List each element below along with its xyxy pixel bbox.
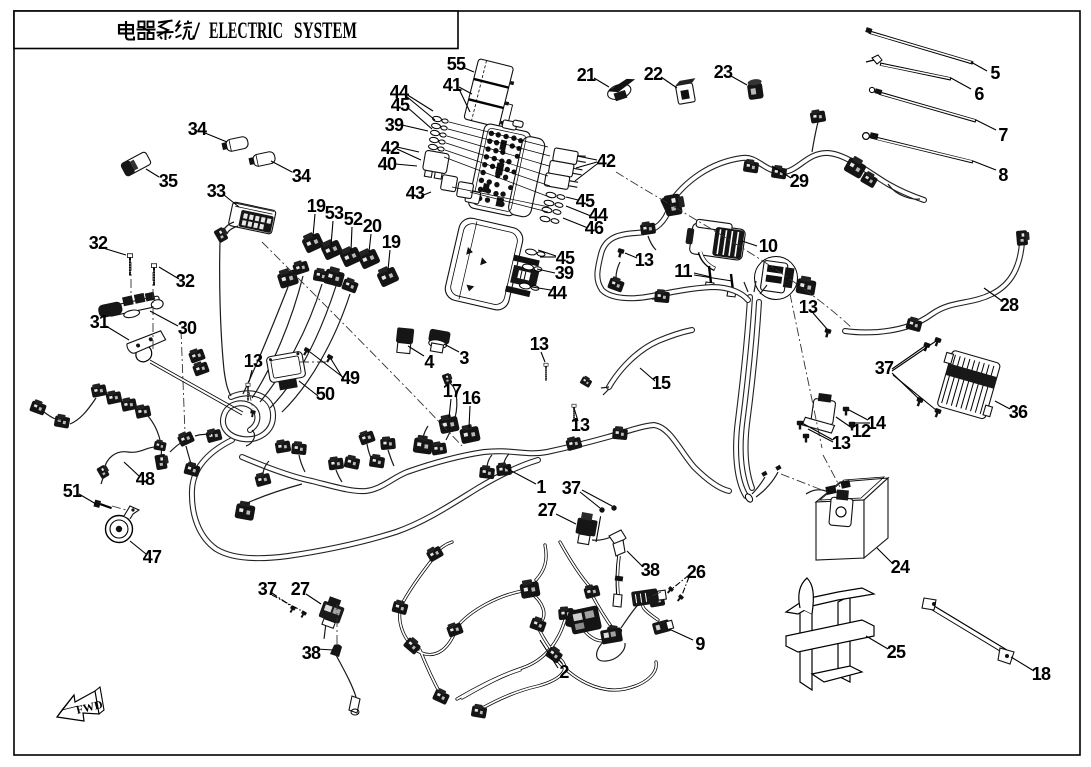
svg-text:17: 17 — [443, 381, 462, 401]
svg-text:53: 53 — [325, 203, 344, 223]
svg-text:ELECTRIC: ELECTRIC — [209, 18, 283, 44]
svg-text:35: 35 — [159, 171, 178, 191]
svg-text:32: 32 — [89, 233, 108, 253]
svg-text:2: 2 — [559, 662, 569, 682]
svg-text:34: 34 — [292, 166, 311, 186]
svg-text:33: 33 — [207, 181, 226, 201]
svg-text:42: 42 — [381, 138, 400, 158]
svg-text:14: 14 — [867, 413, 886, 433]
svg-text:25: 25 — [887, 642, 906, 662]
svg-text:13: 13 — [799, 297, 818, 317]
svg-text:49: 49 — [341, 368, 360, 388]
svg-text:13: 13 — [832, 433, 851, 453]
svg-text:37: 37 — [875, 358, 894, 378]
svg-text:27: 27 — [538, 500, 557, 520]
svg-text:20: 20 — [363, 216, 382, 236]
svg-text:5: 5 — [990, 63, 1000, 83]
svg-text:8: 8 — [998, 165, 1008, 185]
svg-text:13: 13 — [635, 250, 654, 270]
svg-text:/: / — [192, 18, 201, 45]
svg-text:11: 11 — [674, 261, 692, 281]
svg-text:18: 18 — [1032, 664, 1051, 684]
svg-text:47: 47 — [143, 547, 162, 567]
svg-text:13: 13 — [530, 334, 549, 354]
svg-text:19: 19 — [307, 196, 326, 216]
svg-text:7: 7 — [998, 125, 1008, 145]
svg-text:38: 38 — [302, 643, 321, 663]
svg-text:55: 55 — [447, 54, 466, 74]
svg-text:24: 24 — [891, 557, 910, 577]
svg-text:4: 4 — [424, 352, 434, 372]
svg-text:28: 28 — [1000, 295, 1019, 315]
svg-text:3: 3 — [459, 348, 469, 368]
svg-text:37: 37 — [258, 579, 277, 599]
svg-text:42: 42 — [597, 151, 616, 171]
svg-text:50: 50 — [316, 384, 335, 404]
svg-text:31: 31 — [90, 312, 109, 332]
svg-text:45: 45 — [556, 248, 575, 268]
svg-text:26: 26 — [687, 562, 706, 582]
svg-text:46: 46 — [585, 218, 604, 238]
svg-text:36: 36 — [1009, 402, 1028, 422]
svg-text:6: 6 — [974, 84, 984, 104]
svg-text:10: 10 — [759, 236, 778, 256]
svg-text:41: 41 — [443, 75, 462, 95]
svg-text:32: 32 — [176, 271, 195, 291]
svg-text:13: 13 — [244, 351, 263, 371]
svg-text:16: 16 — [462, 388, 481, 408]
svg-text:43: 43 — [406, 183, 425, 203]
svg-text:34: 34 — [188, 119, 207, 139]
svg-text:45: 45 — [576, 191, 595, 211]
svg-text:15: 15 — [652, 373, 671, 393]
svg-text:23: 23 — [714, 62, 733, 82]
svg-text:38: 38 — [641, 560, 660, 580]
svg-text:21: 21 — [577, 65, 596, 85]
svg-text:48: 48 — [136, 469, 155, 489]
svg-text:37: 37 — [562, 478, 581, 498]
svg-text:45: 45 — [391, 95, 410, 115]
svg-text:SYSTEM: SYSTEM — [294, 18, 357, 44]
svg-text:1: 1 — [536, 477, 546, 497]
svg-text:27: 27 — [291, 579, 310, 599]
svg-text:52: 52 — [344, 209, 363, 229]
svg-text:9: 9 — [695, 634, 705, 654]
svg-text:39: 39 — [385, 115, 404, 135]
svg-text:22: 22 — [644, 64, 663, 84]
svg-text:30: 30 — [178, 318, 197, 338]
svg-text:29: 29 — [790, 171, 809, 191]
svg-text:44: 44 — [548, 283, 567, 303]
svg-text:13: 13 — [571, 415, 590, 435]
svg-text:51: 51 — [63, 481, 82, 501]
svg-text:19: 19 — [382, 232, 401, 252]
